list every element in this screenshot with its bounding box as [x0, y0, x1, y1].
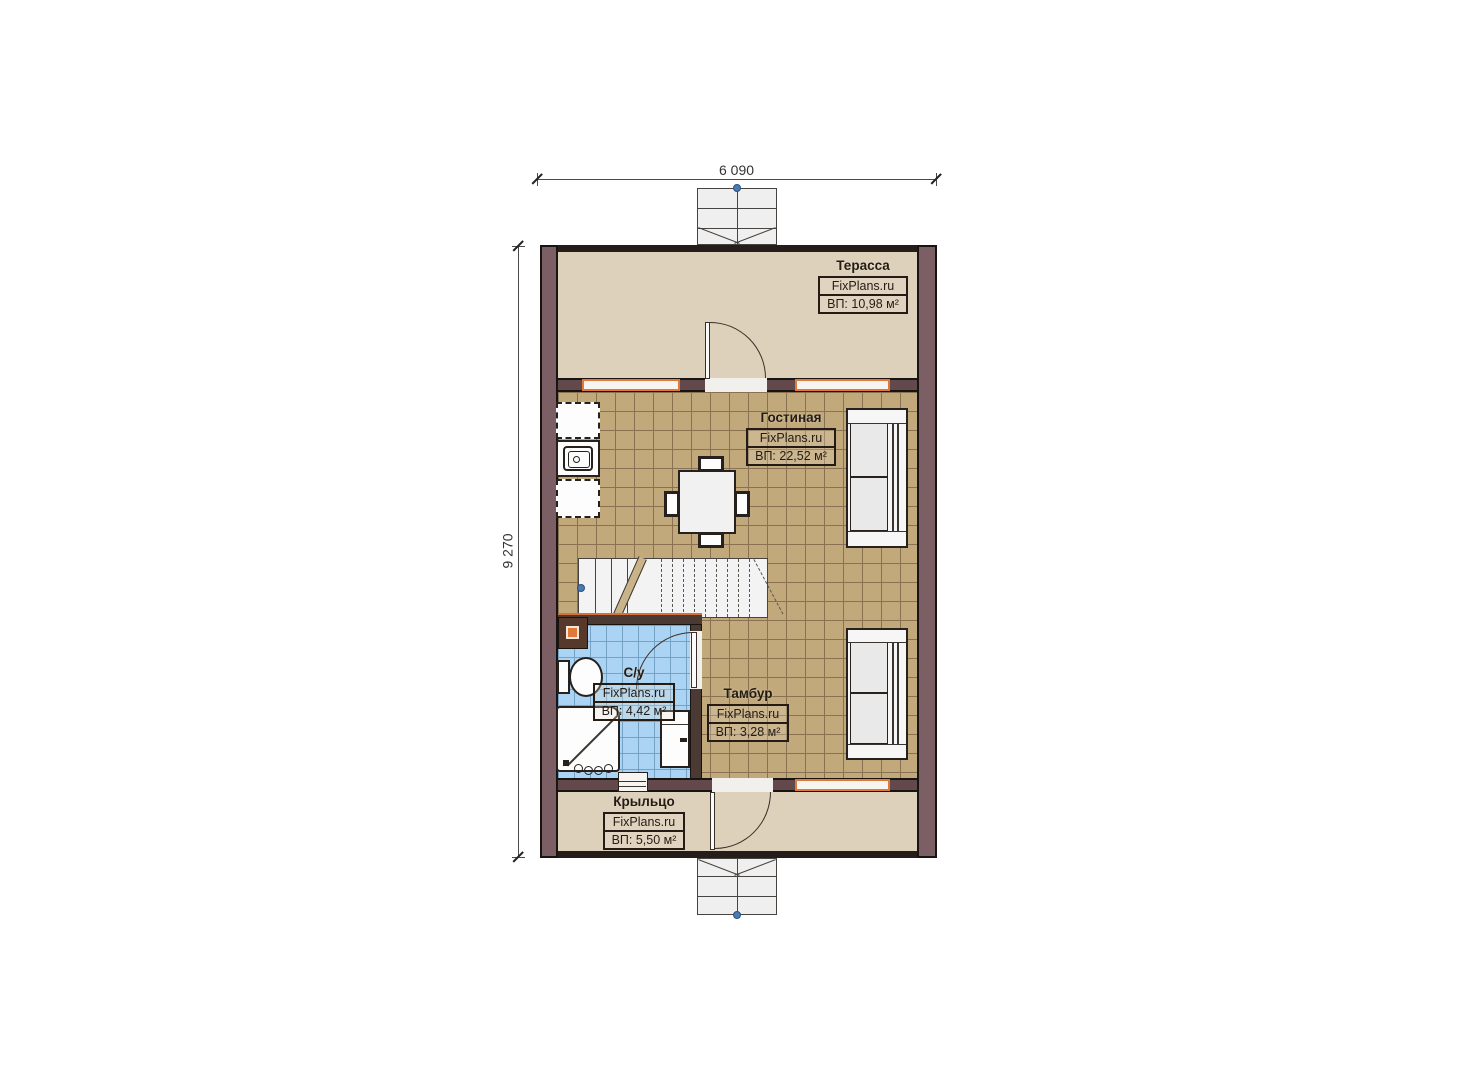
room-name: Терасса [836, 258, 890, 273]
chair-right [734, 491, 750, 517]
room-area: ВП: 22,52 м² [748, 446, 834, 464]
dimension-line-top [537, 179, 936, 180]
terrace-door-opening [705, 378, 767, 392]
entry-marker-top [733, 184, 741, 192]
sofa-lower [846, 628, 908, 760]
shower-drain [563, 760, 569, 766]
watermark-text: FixPlans.ru [820, 278, 906, 294]
bathroom-window [618, 772, 648, 792]
label-living: Гостиная FixPlans.ru ВП: 22,52 м² [740, 410, 842, 466]
window-living-right [795, 379, 890, 391]
watermark-text: FixPlans.ru [595, 685, 674, 701]
sink-icon [563, 446, 593, 471]
room-name: Гостиная [760, 410, 821, 425]
room-info-box: FixPlans.ru ВП: 4,42 м² [593, 683, 676, 721]
dimension-height-label: 9 270 [500, 529, 516, 572]
room-area: ВП: 10,98 м² [820, 294, 906, 312]
dimension-width-label: 6 090 [715, 162, 758, 178]
room-info-box: FixPlans.ru ВП: 3,28 м² [707, 704, 790, 742]
room-name: Тамбур [724, 686, 773, 701]
dimension-line-left [518, 246, 519, 857]
label-terrace: Терасса FixPlans.ru ВП: 10,98 м² [810, 258, 916, 314]
chimney-block [558, 617, 588, 649]
label-porch: Крыльцо FixPlans.ru ВП: 5,50 м² [596, 794, 692, 850]
window-living-left [582, 379, 680, 391]
chair-bottom [698, 532, 724, 548]
kitchen-cabinet-top [556, 402, 600, 439]
kitchen-cabinet-bottom [556, 479, 600, 518]
room-info-box: FixPlans.ru ВП: 22,52 м² [746, 428, 836, 466]
room-area: ВП: 5,50 м² [605, 830, 684, 848]
entry-steps-bottom [697, 858, 777, 915]
room-area: ВП: 3,28 м² [709, 722, 788, 740]
vent-icon [566, 626, 579, 639]
label-bathroom: С/у FixPlans.ru ВП: 4,42 м² [584, 665, 684, 721]
porch-door-opening [712, 778, 773, 792]
room-name: С/у [623, 665, 644, 680]
watermark-text: FixPlans.ru [709, 706, 788, 722]
kitchen-sink-unit [556, 440, 600, 477]
watermark-text: FixPlans.ru [605, 814, 684, 830]
wall-right [917, 245, 937, 858]
room-area: ВП: 4,42 м² [595, 701, 674, 719]
room-name: Крыльцо [613, 794, 674, 809]
entry-marker-bottom [733, 911, 741, 919]
wall-top [558, 245, 917, 252]
staircase [578, 558, 768, 618]
window-porch [795, 779, 890, 791]
room-info-box: FixPlans.ru ВП: 10,98 м² [818, 276, 908, 314]
floor-plan-canvas: 6 090 9 270 [0, 0, 1473, 1080]
watermark-text: FixPlans.ru [748, 430, 834, 446]
dining-table [678, 470, 736, 534]
wall-bottom [558, 851, 917, 858]
room-info-box: FixPlans.ru ВП: 5,50 м² [603, 812, 686, 850]
sofa-upper [846, 408, 908, 548]
stair-marker [577, 584, 585, 592]
label-vestibule: Тамбур FixPlans.ru ВП: 3,28 м² [700, 686, 796, 742]
entry-steps-top [697, 188, 777, 245]
